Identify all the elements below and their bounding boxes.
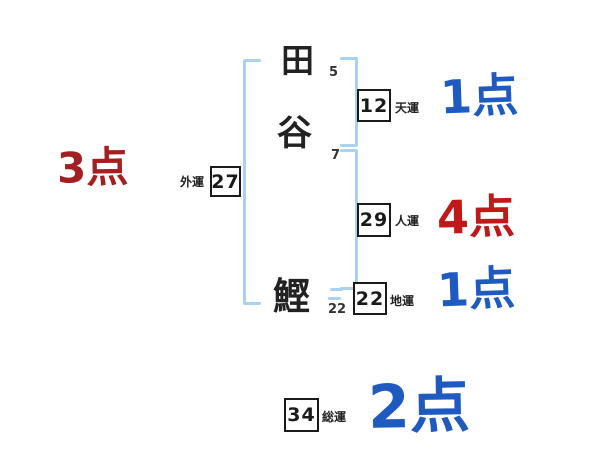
person-luck-score: 4点 bbox=[437, 193, 516, 240]
name-char-2-strokes: 7 bbox=[331, 149, 340, 162]
outer-luck-value-box: 27 bbox=[210, 166, 241, 197]
name-fortune-diagram: 3点 外運 27 田 5 谷 7 鰹 22 12 天運 1点 29 人運 4点 … bbox=[0, 0, 600, 470]
name-char-3: 鰹 bbox=[273, 278, 310, 315]
outer-luck-bracket bbox=[243, 59, 261, 305]
total-luck-score: 2点 bbox=[367, 376, 470, 438]
total-luck-value-box: 34 bbox=[284, 398, 319, 432]
name-char-1-strokes: 5 bbox=[329, 66, 338, 79]
outer-luck-score: 3点 bbox=[57, 146, 129, 189]
person-luck-bracket bbox=[340, 149, 358, 290]
name-char-1: 田 bbox=[281, 44, 314, 77]
name-char-3-strokes: 22 bbox=[328, 303, 346, 316]
earth-luck-bracket bbox=[330, 288, 343, 291]
person-luck-value-box: 29 bbox=[357, 203, 391, 237]
earth-luck-bracket-lower bbox=[328, 297, 341, 300]
outer-luck-label: 外運 bbox=[180, 173, 204, 190]
earth-luck-value-box: 22 bbox=[353, 282, 387, 315]
heaven-luck-value-box: 12 bbox=[357, 89, 391, 122]
heaven-luck-label: 天運 bbox=[395, 99, 419, 116]
total-luck-label: 総運 bbox=[322, 408, 346, 425]
name-char-2: 谷 bbox=[277, 117, 312, 152]
earth-luck-label: 地運 bbox=[390, 292, 414, 309]
heaven-luck-bracket bbox=[340, 57, 358, 147]
heaven-luck-score: 1点 bbox=[439, 72, 519, 121]
person-luck-label: 人運 bbox=[395, 212, 419, 229]
earth-luck-score: 1点 bbox=[436, 265, 516, 314]
